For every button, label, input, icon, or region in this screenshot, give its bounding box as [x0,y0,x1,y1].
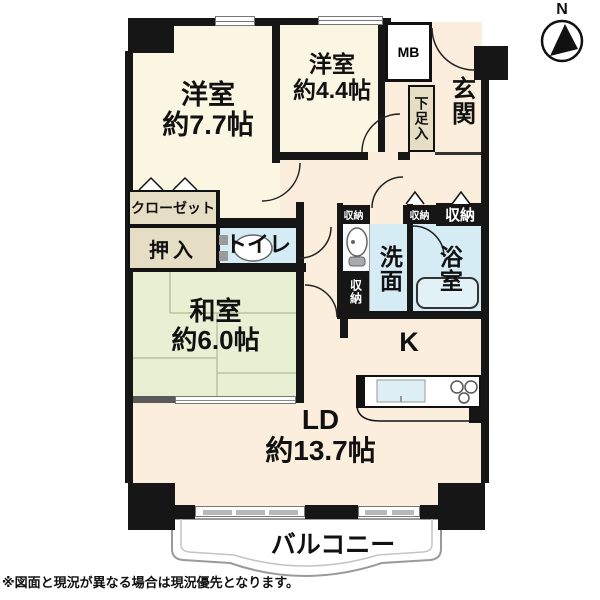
washroom-label: 洗面 [370,226,407,311]
japanese-room-sill [133,396,175,403]
wall-segment [213,218,303,226]
storage-label: 収納 [445,204,475,225]
western-room-2-label: 洋室 約4.4帖 [272,52,392,104]
window [318,16,383,25]
pillar-bottom-right [438,483,485,530]
toilet-label: トイレ [220,233,296,258]
wall-segment [398,152,410,160]
storage-label: 収納 [348,279,365,305]
wall-segment [340,311,348,338]
compass-north-label: N [549,1,575,19]
storage-box: 収納 [343,271,369,312]
room-size: 約6.0帖 [138,326,293,355]
window-balcony [195,506,305,517]
floor-plan: クローゼット 押入 下足入 MB 収納 収納 収納 収納 [0,0,600,600]
kitchen-label: K [393,327,425,357]
wall-segment [469,407,486,423]
shoe-box: 下足入 [408,85,435,152]
room-name: LD [238,404,403,435]
oshiire-box: 押入 [128,226,218,270]
meter-box-label: MB [398,44,420,60]
window [215,16,255,26]
entrance-label: 玄関 [441,64,479,138]
wall-bottom [420,505,440,519]
closet-box: クローゼット [128,190,218,226]
wall-segment [166,18,215,26]
balcony-label: バルコニー [253,531,413,559]
window-balcony [358,506,420,517]
wall-segment [278,18,318,25]
room-name: 洋室 [133,80,283,110]
disclaimer-note: ※図面と現況が異なる場合は現況優先となります。 [2,576,432,591]
bathroom-label: 浴室 [430,226,467,311]
oshiire-label: 押入 [149,234,197,263]
entrance-step-line [435,152,481,155]
wall-segment [296,202,304,403]
sliding-door [175,396,296,404]
closet-label: クローゼット [131,198,215,218]
room-size: 約13.7帖 [238,435,403,466]
storage-box: 収納 [436,203,484,226]
room-size: 約4.4帖 [272,78,392,104]
living-dining-label: LD 約13.7帖 [238,404,403,467]
japanese-room-label: 和室 約6.0帖 [138,297,293,355]
room-size: 約7.7帖 [133,110,283,140]
pillar-entrance [474,46,508,80]
room-name: 洋室 [272,52,392,78]
meter-box: MB [385,22,432,82]
wall-bottom [133,505,195,519]
storage-label: 収納 [344,207,364,222]
room-name: 和室 [138,297,293,326]
wall-bottom [305,505,358,519]
storage-box: 収納 [337,205,370,224]
storage-label: 収納 [410,207,430,222]
storage-box: 収納 [403,205,436,224]
wall-segment [280,152,368,160]
floor-plan-page: { "note": "※図面と現況が異なる場合は現況優先となります。", "co… [0,0,600,600]
compass-icon [542,21,582,61]
western-room-1-label: 洋室 約7.7帖 [133,80,283,140]
shoe-box-label: 下足入 [412,96,432,141]
wall-segment [337,311,489,319]
